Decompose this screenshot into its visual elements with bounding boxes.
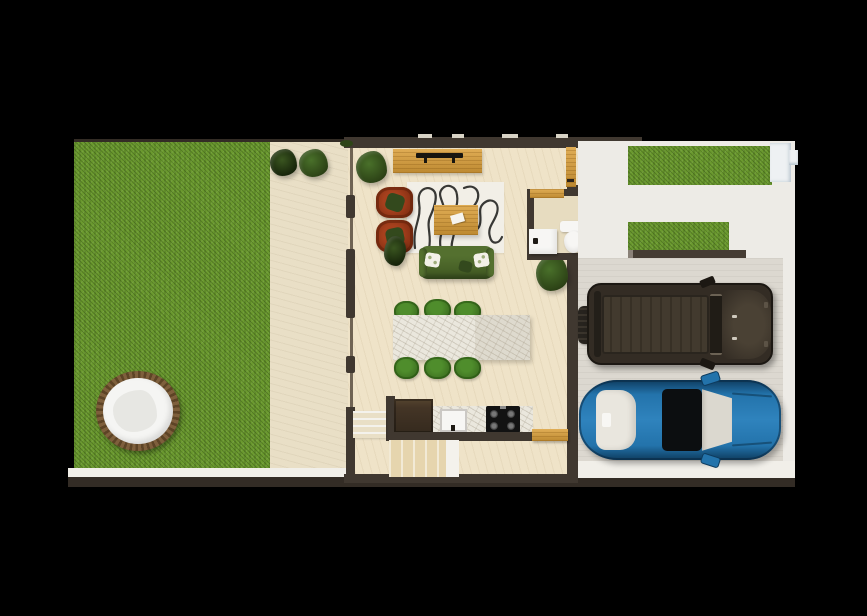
entry-steps — [353, 411, 386, 438]
sidewalk-right — [578, 461, 795, 478]
burner-icon — [490, 410, 498, 418]
sofa — [419, 246, 494, 279]
patio — [270, 142, 348, 478]
sedan-hood-crease — [732, 393, 772, 398]
dining-chair — [424, 357, 451, 379]
kitchen-sink — [440, 409, 467, 432]
sofa-pillow-floral — [424, 252, 441, 268]
suv-car — [587, 283, 773, 365]
burner-icon — [507, 422, 515, 430]
hot-tub-water — [113, 390, 157, 432]
armchair — [376, 187, 413, 218]
sedan-windshield — [702, 388, 732, 452]
entry-bench — [532, 429, 568, 441]
patio-plant-icon — [270, 149, 297, 176]
yard-wall-cap — [770, 143, 791, 182]
fridge — [394, 399, 433, 433]
roof-notch — [418, 134, 432, 138]
bathroom-sink — [529, 229, 557, 254]
suv-hood — [722, 290, 771, 359]
floor-plan-render — [0, 0, 867, 616]
sedan-glass-roof — [662, 389, 702, 451]
sofa-pillow-green — [458, 260, 473, 274]
hot-tub-rim — [96, 371, 180, 451]
sedan-hood-crease — [732, 442, 772, 447]
suv-headlight-icon — [764, 341, 768, 347]
suv-windshield — [710, 294, 722, 355]
roof-notch — [556, 134, 568, 138]
sink-faucet-icon — [533, 238, 538, 244]
floor-plant-icon — [384, 236, 406, 266]
dining-chair — [394, 357, 419, 379]
patio-plant-icon — [299, 149, 328, 177]
coffee-table-book — [450, 212, 465, 224]
sofa-pillow-floral — [473, 252, 490, 268]
suv-rear-window — [594, 291, 601, 357]
coffee-table — [434, 205, 478, 235]
door-handle-icon — [567, 179, 574, 182]
dining-chair — [454, 357, 481, 379]
left-wall-segment — [346, 195, 355, 218]
suv-hood-vent — [732, 315, 737, 318]
staircase — [389, 440, 446, 477]
bathroom-door — [530, 189, 564, 198]
tv-leg — [424, 158, 427, 163]
kitchen-faucet-icon — [451, 425, 455, 431]
yard-wall-cap-notch — [789, 150, 798, 165]
corner-shrub-icon — [340, 140, 353, 147]
living-room-plant-icon — [356, 151, 387, 183]
stove-cooktop — [486, 406, 520, 433]
blue-sedan — [579, 380, 781, 460]
hot-tub-shell — [103, 378, 173, 444]
left-wall-segment — [346, 249, 355, 318]
dining-table-leaf — [475, 315, 530, 360]
left-wall-segment — [346, 356, 355, 373]
burner-icon — [507, 410, 515, 418]
front-hedge-mid — [628, 222, 729, 251]
suv-headlight-icon — [764, 302, 768, 308]
armchair-pillow — [384, 192, 406, 214]
tv-leg — [452, 158, 455, 163]
sofa-side-plant-icon — [536, 255, 568, 291]
house-bottom-wall — [344, 474, 578, 483]
front-hedge-top — [628, 146, 772, 185]
stove-controls — [500, 406, 506, 409]
suv-roof-rack — [602, 295, 709, 354]
sedan-trunk — [596, 390, 636, 450]
dining-table — [393, 315, 530, 360]
roof-notch — [502, 134, 518, 138]
stair-landing — [446, 440, 459, 477]
burner-icon — [490, 422, 498, 430]
roof-notch — [452, 134, 464, 138]
sedan-rear-plate — [602, 413, 611, 427]
suv-hood-vent — [732, 337, 737, 340]
